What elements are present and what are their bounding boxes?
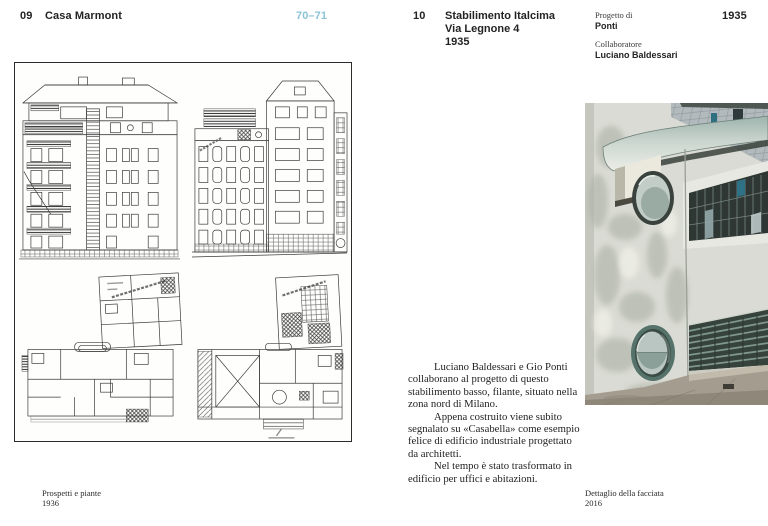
body-text: Luciano Baldessari e Gio Ponti collabora… bbox=[408, 361, 580, 485]
left-page-index: 09 bbox=[20, 10, 32, 22]
book-spread: 09 Casa Marmont 70–71 bbox=[0, 0, 768, 526]
title-line-2: Via Legnone 4 bbox=[445, 23, 555, 36]
drain-grate bbox=[723, 384, 734, 389]
left-page-title: Casa Marmont bbox=[45, 10, 122, 22]
drawings-svg bbox=[15, 63, 351, 441]
porthole-window-upper bbox=[632, 171, 674, 225]
credit-collaborator: Collaboratore Luciano Baldessari bbox=[595, 40, 678, 60]
left-caption-line1: Prospetti e piante bbox=[42, 488, 101, 498]
right-caption-line1: Dettaglio della facciata bbox=[585, 488, 664, 498]
credit-collaborator-label: Collaboratore bbox=[595, 40, 678, 49]
credit-project-name: Ponti bbox=[595, 21, 633, 31]
right-page-title: Stabilimento Italcima Via Legnone 4 1935 bbox=[445, 10, 555, 49]
paragraph-1: Luciano Baldessari e Gio Ponti collabora… bbox=[408, 361, 580, 411]
credit-project: Progetto di Ponti bbox=[595, 11, 633, 31]
floor-plan-right bbox=[198, 275, 343, 438]
floor-plan-left bbox=[22, 273, 182, 422]
paragraph-2: Appena costruito viene subito segnalato … bbox=[408, 411, 580, 461]
left-page-folio: 70–71 bbox=[296, 10, 327, 22]
support-box-shade bbox=[615, 166, 625, 201]
right-page-year: 1935 bbox=[722, 10, 747, 22]
facade-photo bbox=[585, 103, 768, 405]
right-caption-line2: 2016 bbox=[585, 498, 664, 508]
architectural-drawings-figure bbox=[14, 62, 352, 442]
elevation-drawing-right bbox=[192, 81, 347, 257]
left-caption: Prospetti e piante 1936 bbox=[42, 488, 101, 508]
credit-project-label: Progetto di bbox=[595, 11, 633, 20]
right-page-index: 10 bbox=[413, 10, 425, 22]
left-caption-line2: 1936 bbox=[42, 498, 101, 508]
right-caption: Dettaglio della facciata 2016 bbox=[585, 488, 664, 508]
elevation-drawing-left bbox=[19, 77, 180, 259]
wall-corner-shade bbox=[585, 103, 594, 405]
porthole-window-lower bbox=[631, 325, 675, 381]
title-line-1: Stabilimento Italcima bbox=[445, 10, 555, 23]
paragraph-3: Nel tempo è stato trasformato in edifici… bbox=[408, 460, 580, 485]
credit-collaborator-name: Luciano Baldessari bbox=[595, 50, 678, 60]
title-line-3: 1935 bbox=[445, 36, 555, 49]
facade-photo-svg bbox=[585, 103, 768, 405]
